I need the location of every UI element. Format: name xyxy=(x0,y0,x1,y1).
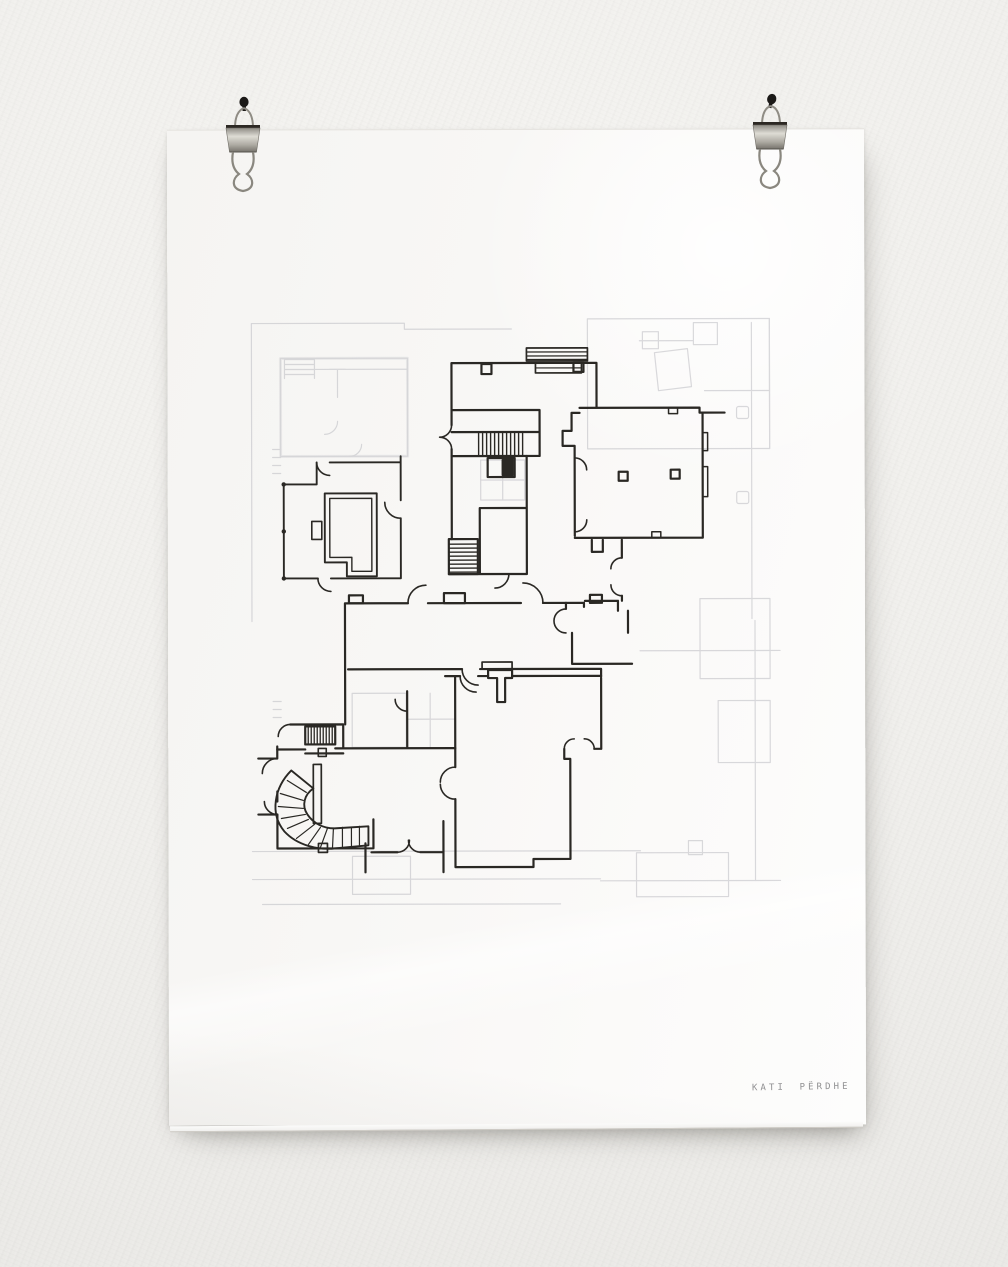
lower-hall-with-t-pier xyxy=(440,670,601,867)
door-swing-icon xyxy=(495,574,509,588)
tracing-paper-sheet: KATI PËRDHE xyxy=(167,128,866,1125)
long-corridor xyxy=(345,583,632,725)
door-swing-icon xyxy=(554,609,566,633)
clip-handle xyxy=(232,152,253,191)
underlay-plan xyxy=(251,318,780,904)
elevator-shaft xyxy=(488,458,515,477)
bottom-wall-with-double-door xyxy=(365,821,443,872)
door-swing-icon xyxy=(611,558,622,596)
door-swing-icon xyxy=(397,840,420,852)
main-staircase xyxy=(440,410,540,456)
left-room-with-island xyxy=(281,456,400,591)
top-room-with-columns xyxy=(451,348,596,410)
floor-plan-drawing xyxy=(244,295,805,916)
door-swing-icon xyxy=(575,458,587,532)
spiral-staircase xyxy=(275,764,368,849)
door-swing-icon xyxy=(440,425,452,449)
clip-body xyxy=(753,122,787,149)
binder-clip-right xyxy=(747,92,793,194)
gallery-wall-photo: KATI PËRDHE xyxy=(0,0,1008,1267)
clip-handle xyxy=(759,149,780,188)
large-hall-with-columns xyxy=(563,408,725,538)
binder-clip-left xyxy=(220,95,266,197)
floor-plan-svg xyxy=(244,295,805,916)
caption-text: KATI PËRDHE xyxy=(752,1081,872,1093)
clip-body xyxy=(226,125,260,152)
